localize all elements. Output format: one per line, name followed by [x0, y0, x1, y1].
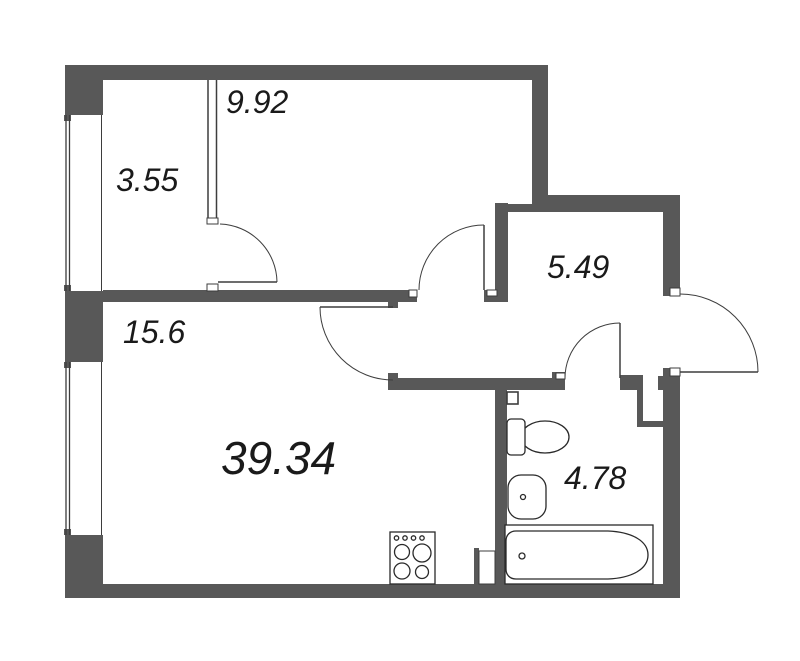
wall-segment-hall-top — [548, 195, 680, 212]
wall-segment-entry-lower — [658, 376, 680, 390]
partition-wall — [208, 80, 217, 218]
door-swing-arc — [320, 307, 393, 380]
door-jamb — [556, 373, 565, 379]
door-swing-arc — [565, 323, 620, 378]
wall-jamb — [388, 373, 398, 378]
toilet-icon — [507, 419, 569, 455]
wall-segment-right-lower — [663, 390, 680, 584]
wall-segment-room-right — [532, 65, 548, 212]
area-label-room-15-6: 15.6 — [123, 316, 185, 348]
wall-segment-shaft-bottom — [637, 421, 663, 427]
door-jamb — [487, 290, 497, 296]
area-label-room-3-55: 3.55 — [116, 164, 178, 196]
duct-box — [507, 392, 518, 404]
window-lower-left — [66, 362, 102, 535]
area-label-room-4-78: 4.78 — [564, 462, 626, 494]
wall-niche — [479, 551, 495, 584]
floor-plan-drawing — [0, 0, 800, 661]
stove-icon — [390, 532, 435, 584]
area-label-total: 39.34 — [221, 435, 336, 481]
door-jamb — [207, 218, 218, 224]
wall-segment-hall-bottom — [388, 378, 565, 390]
floor-plan: 9.92 3.55 15.6 5.49 4.78 39.34 — [0, 0, 800, 661]
door-swing-arc — [419, 225, 484, 290]
door-swing-arc — [680, 294, 758, 372]
door-jamb — [409, 290, 417, 297]
door-swing-arc — [220, 224, 277, 282]
door-jamb — [207, 284, 218, 291]
wall-segment-top — [66, 65, 548, 80]
door-jamb — [670, 288, 680, 296]
bathtub-icon — [505, 525, 653, 584]
wall-segment-hall-right — [663, 212, 680, 288]
wall-segment-pier-midleft — [65, 291, 103, 362]
fixtures — [390, 419, 653, 584]
wall-segment-bottom — [65, 584, 680, 598]
door-jamb — [670, 368, 680, 376]
area-label-room-9-92: 9.92 — [226, 86, 288, 118]
wall-segment-mid-horizontal — [103, 290, 409, 302]
area-label-room-5-49: 5.49 — [547, 251, 609, 283]
wall-segment-thin-top — [495, 204, 532, 212]
wall-segment-corner-topleft — [65, 65, 103, 115]
wall-segment-niche-strip — [474, 548, 479, 584]
window-upper-left — [66, 115, 102, 291]
wall-segment-vestibule — [495, 203, 508, 302]
wall-segment-shaft-left — [637, 375, 643, 427]
sink-icon — [508, 475, 546, 519]
